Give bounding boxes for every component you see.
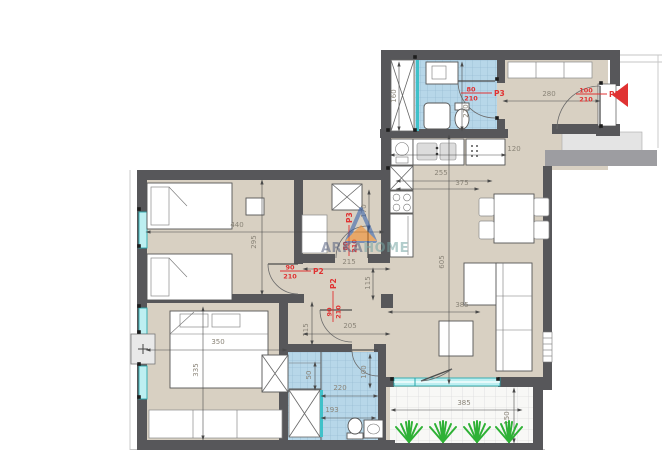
shower-glass-icon [416,60,419,131]
junction-tick [413,128,417,132]
dimension-label: 385 [457,399,470,407]
shower-glass-icon [320,390,323,437]
closet-strip-icon [149,410,282,438]
dimension-label: 385 [455,301,468,309]
svg-text:90: 90 [285,264,295,272]
dimension-label: 205 [343,322,356,330]
washing-machine-icon [332,184,362,210]
single-bed-icon [147,183,232,229]
svg-text:P3: P3 [345,212,354,223]
svg-text:P2: P2 [313,267,324,276]
stove-icon [390,191,413,213]
junction-tick [390,377,394,381]
svg-text:210: 210 [464,95,478,103]
shaft-icon [289,390,320,437]
coffee-table-icon [439,321,473,356]
hall-closet-icon [508,62,592,78]
watermark-text: ARKAHOME [321,241,409,256]
junction-tick [137,395,141,399]
window-icon [139,308,147,334]
dishwasher-icon [390,166,413,190]
window-icon [139,366,147,399]
junction-tick [137,362,141,366]
dimension-label: 160 [390,89,398,102]
dimension-label: 120 [507,145,520,153]
svg-text:210: 210 [579,96,593,104]
toilet-icon [347,418,363,439]
washbasin-icon [364,420,383,438]
dimension-label: 375 [455,179,468,187]
junction-tick [495,77,499,81]
dimension-label: 100 [360,365,368,378]
floor-plan-canvas: 1602802701202553756052151151704402953503… [0,0,670,450]
svg-text:P3: P3 [494,89,505,98]
junction-tick [137,330,141,334]
junction-tick [413,55,417,59]
dimension-label: 193 [325,406,338,414]
dimension-label: 440 [230,221,243,229]
bathroom-2-fixtures [347,418,383,439]
junction-tick [386,128,390,132]
junction-tick [496,377,500,381]
kitchen-counter-icon [466,139,505,165]
svg-text:210: 210 [335,305,343,319]
exterior-wall-band [545,150,657,166]
dimension-label: 255 [434,169,447,177]
double-bed-icon [170,311,268,388]
junction-tick [137,207,141,211]
dimension-label: 220 [333,384,346,392]
kitchen-sink-icon [413,139,464,165]
window-icon [139,212,147,248]
dimension-label: 115 [302,323,310,336]
svg-text:210: 210 [283,273,297,281]
junction-tick [599,124,603,128]
dimension-label: 335 [192,363,200,376]
svg-text:80: 80 [466,86,476,94]
junction-tick [599,81,603,85]
dimension-label: 50 [305,371,313,380]
svg-text:P2: P2 [329,278,338,289]
kitchen-boiler-icon [391,139,413,165]
dimension-label: 280 [542,90,555,98]
dimension-label: 215 [342,258,355,266]
nightstand-icon [246,198,264,215]
ac-unit-icon [131,334,155,364]
dimension-label: 295 [250,235,258,248]
single-bed-icon [147,254,232,300]
dimension-label: 605 [438,255,446,268]
junction-tick [137,244,141,248]
dimension-label: 115 [364,276,372,289]
floor-plan-svg: 1602802701202553756052151151704402953503… [0,0,670,450]
junction-tick [386,166,390,170]
vanity-sink-icon [426,62,458,84]
svg-text:100: 100 [579,87,593,95]
louver-window-icon [543,332,552,362]
dimension-label: 350 [211,338,224,346]
wardrobe-icon [262,355,288,392]
shower-tray-icon [424,103,450,129]
svg-text:90: 90 [326,307,334,317]
junction-tick [137,304,141,308]
dimension-label: 270 [462,104,470,117]
junction-tick [495,116,499,120]
